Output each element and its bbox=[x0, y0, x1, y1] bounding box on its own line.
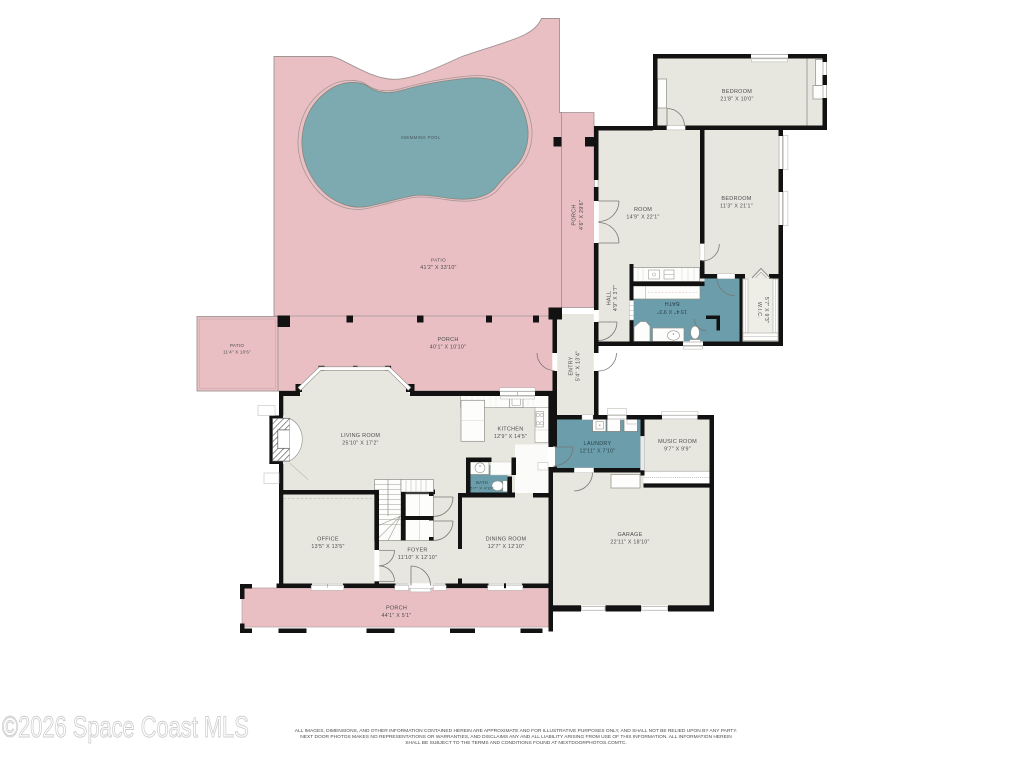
svg-text:40'1" X 10'10": 40'1" X 10'10" bbox=[430, 345, 466, 351]
svg-text:PORCH: PORCH bbox=[572, 204, 578, 225]
svg-text:BEDROOM: BEDROOM bbox=[722, 89, 752, 95]
svg-text:12'9" X 14'5": 12'9" X 14'5" bbox=[494, 434, 527, 440]
svg-text:4'6" X 29'6": 4'6" X 29'6" bbox=[579, 200, 585, 230]
svg-text:25'10" X 17'2": 25'10" X 17'2" bbox=[342, 441, 378, 447]
svg-text:22'11" X 18'10": 22'11" X 18'10" bbox=[610, 540, 649, 546]
svg-text:15'4" X 9'3": 15'4" X 9'3" bbox=[657, 308, 687, 314]
svg-text:PATIO: PATIO bbox=[230, 343, 245, 348]
svg-text:HALL: HALL bbox=[607, 291, 613, 306]
svg-text:5'7" X 9'3": 5'7" X 9'3" bbox=[763, 297, 769, 323]
svg-text:44'1" X 5'1": 44'1" X 5'1" bbox=[382, 613, 412, 619]
svg-text:PATIO: PATIO bbox=[431, 258, 446, 264]
svg-text:BATH: BATH bbox=[664, 300, 679, 306]
svg-text:LIVING ROOM: LIVING ROOM bbox=[341, 433, 381, 439]
svg-text:MUSIC ROOM: MUSIC ROOM bbox=[658, 439, 697, 445]
svg-text:GARAGE: GARAGE bbox=[617, 532, 642, 538]
svg-text:LAUNDRY: LAUNDRY bbox=[584, 441, 612, 447]
svg-text:41'2" X 33'10": 41'2" X 33'10" bbox=[420, 265, 456, 271]
svg-text:SWIMMING POOL: SWIMMING POOL bbox=[401, 135, 441, 140]
svg-text:11'10" X 12'10": 11'10" X 12'10" bbox=[398, 555, 437, 561]
svg-text:KITCHEN: KITCHEN bbox=[498, 427, 524, 433]
svg-text:12'11" X 7'10": 12'11" X 7'10" bbox=[580, 449, 616, 455]
svg-text:11'3" X 21'1": 11'3" X 21'1" bbox=[720, 204, 753, 210]
svg-text:PORCH: PORCH bbox=[437, 337, 458, 343]
svg-text:BEDROOM: BEDROOM bbox=[721, 196, 751, 202]
svg-text:21'8" X 10'0": 21'8" X 10'0" bbox=[720, 97, 753, 103]
svg-text:PORCH: PORCH bbox=[386, 606, 407, 612]
svg-text:ENTRY: ENTRY bbox=[569, 356, 575, 375]
svg-text:OFFICE: OFFICE bbox=[317, 537, 339, 543]
svg-text:5'7" X 4'10": 5'7" X 4'10" bbox=[470, 485, 494, 490]
svg-text:DINING ROOM: DINING ROOM bbox=[486, 537, 527, 543]
svg-text:12'7" X 12'10": 12'7" X 12'10" bbox=[488, 544, 524, 550]
svg-text:11'4" X 10'6": 11'4" X 10'6" bbox=[223, 350, 251, 355]
svg-text:14'9" X 22'1": 14'9" X 22'1" bbox=[626, 215, 659, 221]
svg-text:9'7" X 9'9": 9'7" X 9'9" bbox=[664, 447, 691, 453]
svg-text:BATH: BATH bbox=[476, 480, 488, 485]
svg-text:ROOM: ROOM bbox=[634, 207, 652, 213]
svg-text:4'9" X 3'7": 4'9" X 3'7" bbox=[613, 285, 619, 311]
svg-text:W.I.C.: W.I.C. bbox=[756, 302, 762, 318]
svg-text:5'4" X 13'4": 5'4" X 13'4" bbox=[576, 351, 582, 381]
svg-text:FOYER: FOYER bbox=[407, 548, 427, 554]
svg-text:13'5" X 13'5": 13'5" X 13'5" bbox=[311, 544, 344, 550]
